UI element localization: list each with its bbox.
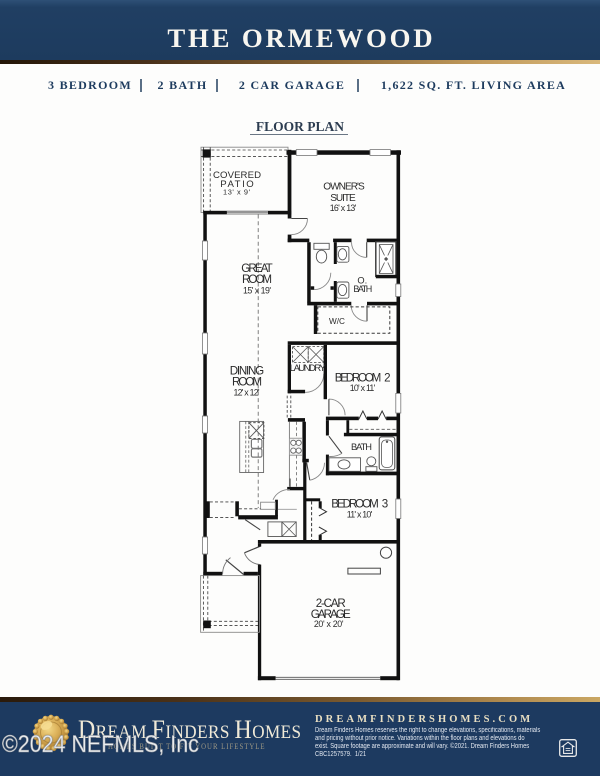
- svg-text:ROOM: ROOM: [232, 375, 262, 388]
- svg-text:W/C: W/C: [329, 317, 345, 326]
- svg-text:12' x 12': 12' x 12': [234, 388, 260, 398]
- svg-text:LAUNDRY: LAUNDRY: [290, 362, 327, 373]
- svg-text:20' x 20': 20' x 20': [314, 619, 344, 629]
- svg-text:OWNER'S: OWNER'S: [323, 181, 365, 192]
- svg-text:BATH: BATH: [351, 442, 372, 452]
- svg-text:ROOM: ROOM: [242, 273, 272, 286]
- svg-text:13' x 9': 13' x 9': [223, 187, 251, 196]
- svg-text:16' x 13': 16' x 13': [330, 203, 357, 213]
- svg-text:BATH: BATH: [353, 284, 372, 294]
- svg-text:11' x 10': 11' x 10': [347, 509, 373, 519]
- svg-text:2: 2: [384, 372, 390, 385]
- svg-text:15' x 19': 15' x 19': [243, 285, 271, 295]
- svg-text:3: 3: [382, 497, 388, 510]
- svg-text:10' x 11': 10' x 11': [350, 383, 376, 393]
